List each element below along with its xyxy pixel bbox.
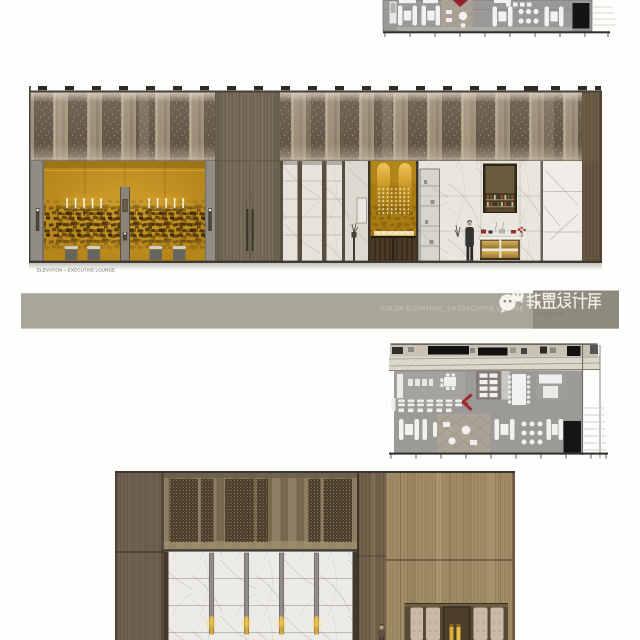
svg-text:SINCE 2013: SINCE 2013 (538, 311, 565, 316)
svg-text:ELEVATION – EXECUTIVE LOUNGE: ELEVATION – EXECUTIVE LOUNGE (37, 267, 115, 272)
